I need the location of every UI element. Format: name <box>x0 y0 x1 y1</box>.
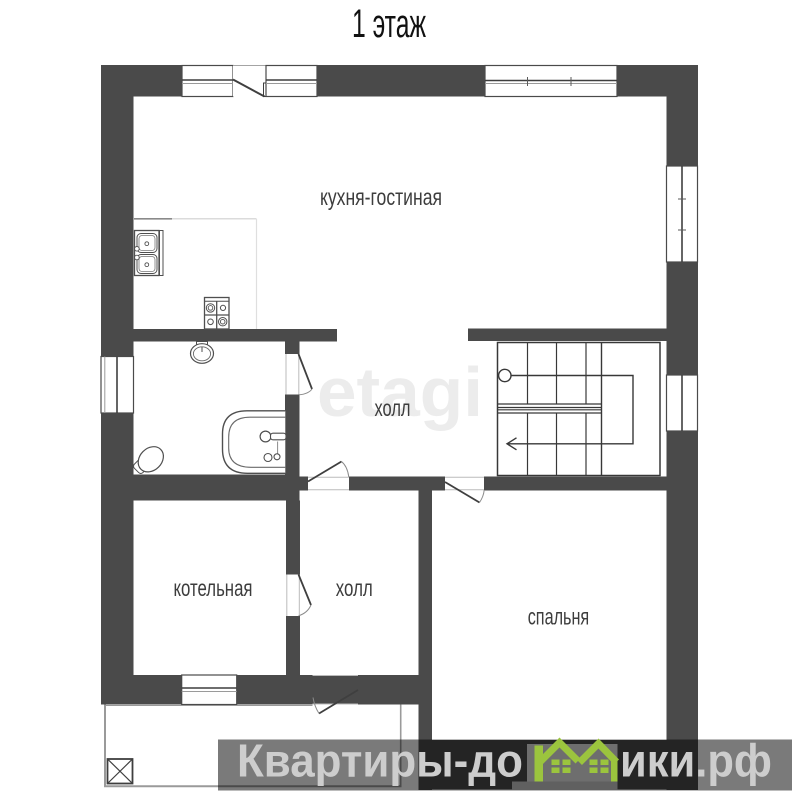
svg-text:ики.рф: ики.рф <box>620 735 772 787</box>
svg-text:холл: холл <box>336 575 373 601</box>
svg-text:кухня-гостиная: кухня-гостиная <box>320 184 442 210</box>
svg-text:Квартиры-до: Квартиры-до <box>237 735 523 787</box>
svg-text:спальня: спальня <box>528 604 590 630</box>
svg-text:1 этаж: 1 этаж <box>352 2 426 46</box>
svg-text:холл: холл <box>375 395 411 421</box>
svg-text:котельная: котельная <box>174 575 253 601</box>
